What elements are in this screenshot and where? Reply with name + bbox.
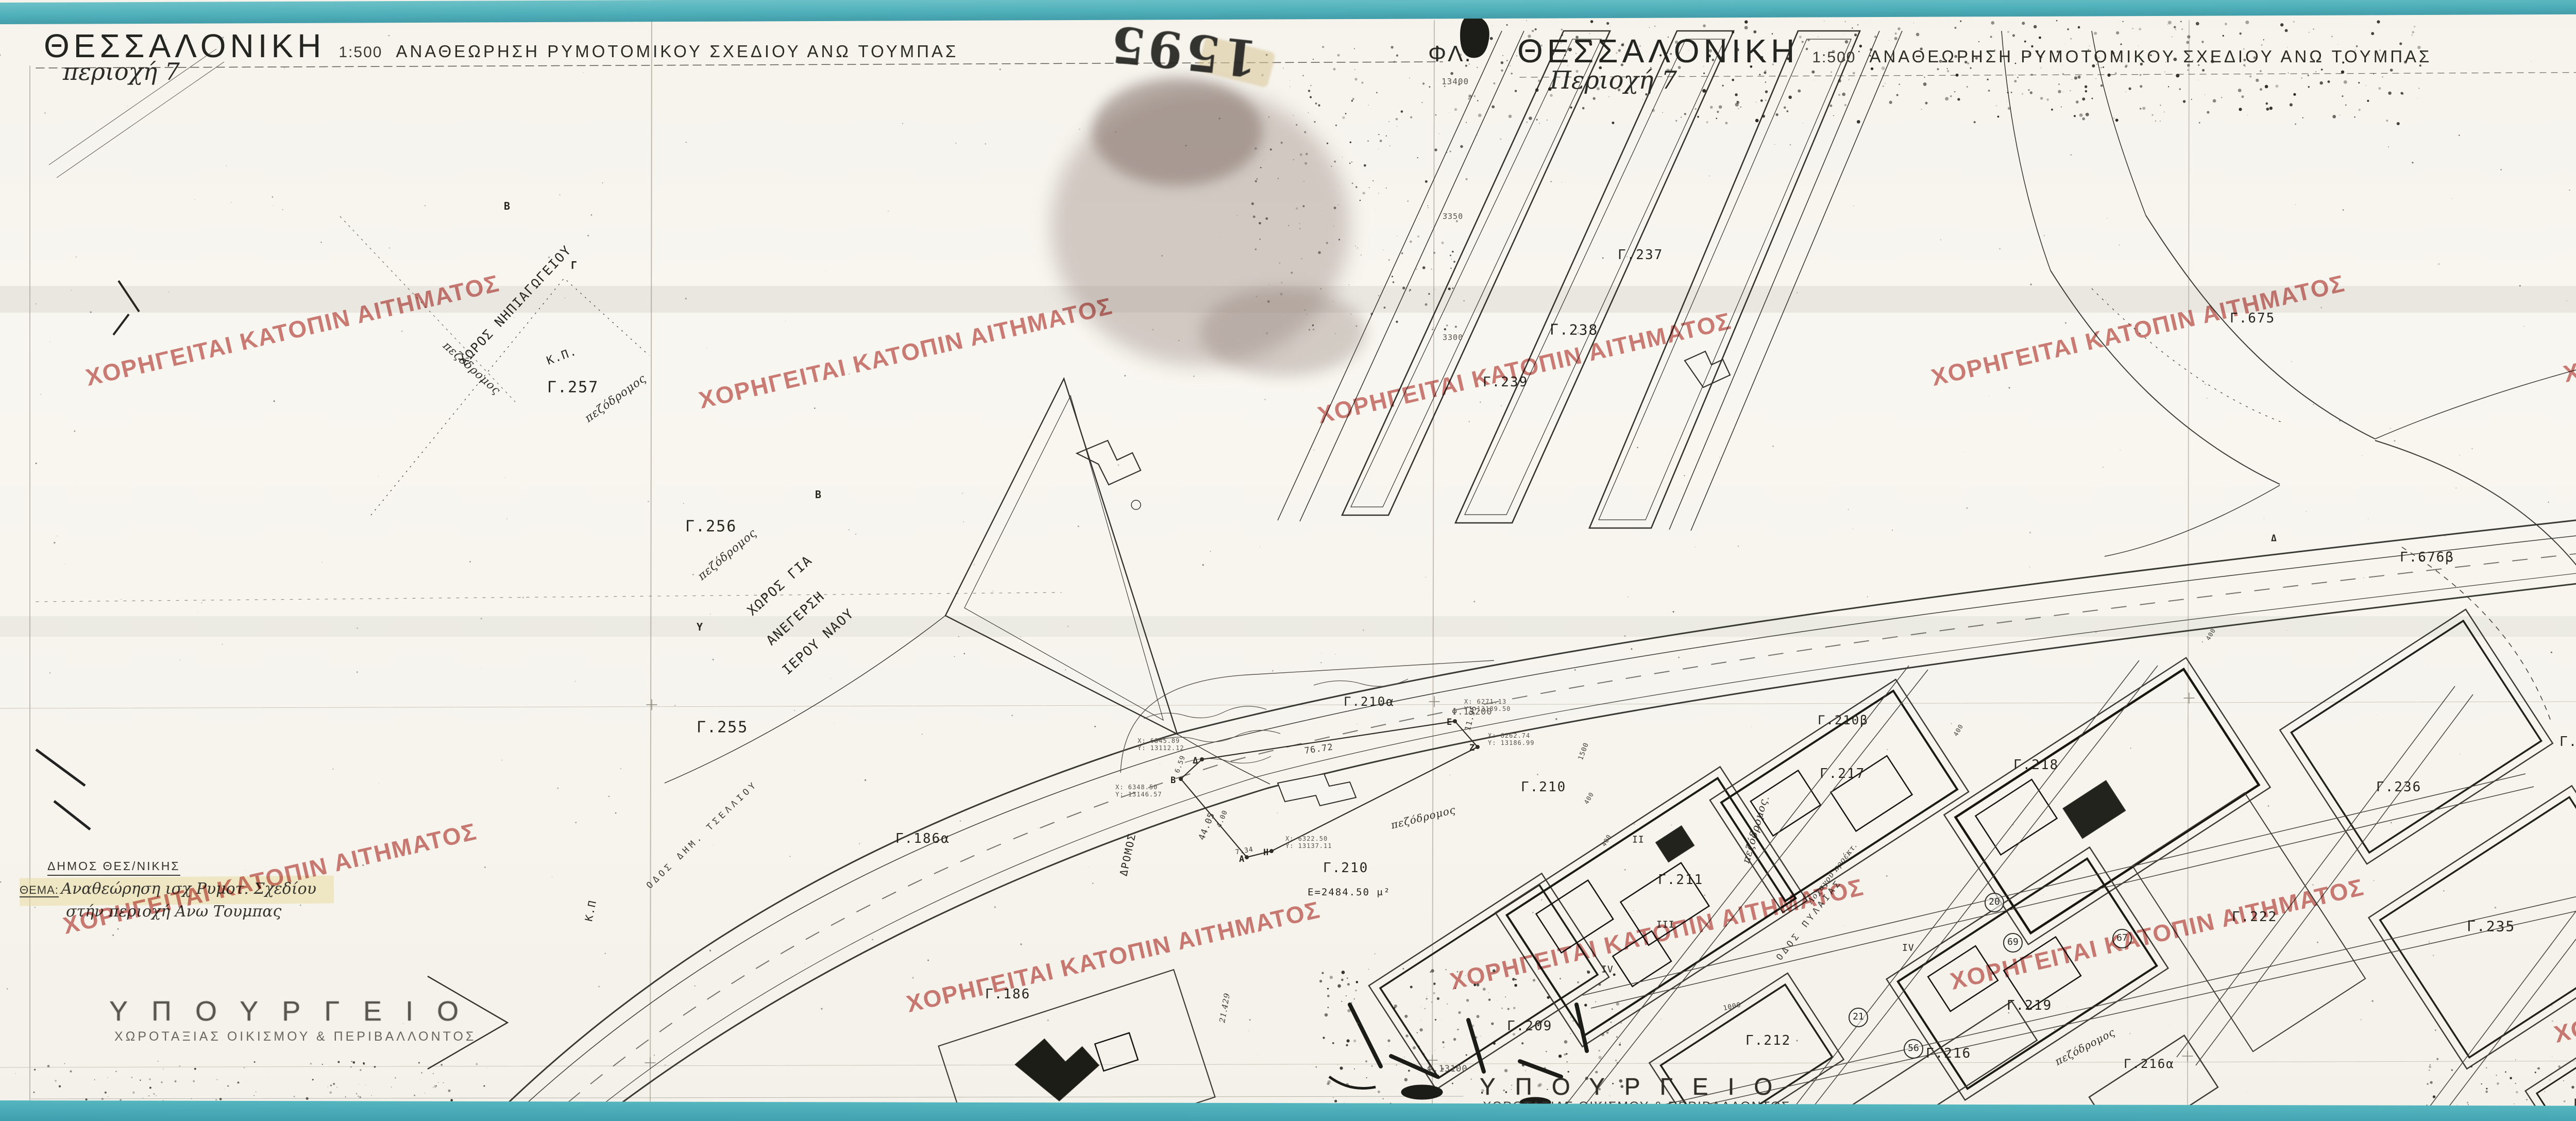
- title-subtitle: ΑΝΑΘΕΩΡΗΣΗ ΡΥΜΟΤΟΜΙΚΟΥ ΣΧΕΔΙΟΥ ΑΝΩ ΤΟΥΜΠ…: [396, 42, 958, 61]
- map-label: Γ.210α: [1344, 694, 1395, 709]
- map-label: Δ: [2271, 533, 2277, 544]
- map-label: Ε=2484.50 μ²: [1308, 887, 1391, 898]
- map-label: Γ.212: [1745, 1033, 1791, 1048]
- block-g210-hatched: [1179, 719, 1480, 859]
- map-label: Χ: 6271.13: [1464, 698, 1506, 705]
- municipality-note: ΔΗΜΟΣ ΘΕΣ/ΝΙΚΗΣ: [47, 859, 180, 873]
- area-note-left: περιοχή 7: [63, 58, 180, 86]
- map-label: Υ: 13186.99: [1488, 739, 1534, 746]
- map-label: Β: [1171, 775, 1176, 786]
- map-label: ΙV: [1601, 964, 1614, 975]
- ministry-left-line1: ΥΠΟΥΡΓΕΙΟ: [109, 995, 482, 1027]
- map-label: Γ.238: [1550, 321, 1598, 338]
- frame-and-gridlines: [0, 21, 2576, 1105]
- map-label: Υ: 13112.12: [1138, 744, 1184, 752]
- ministry-left-line2: ΧΩΡΟΤΑΞΙΑΣ ΟΙΚΙΣΜΟΥ & ΠΕΡΙΒΑΛΛΟΝΤΟΣ: [114, 1029, 476, 1044]
- map-label: Ε: [1447, 717, 1452, 727]
- map-drawing: [0, 0, 2576, 1121]
- map-label: Γ.209: [1507, 1018, 1552, 1034]
- map-label: Γ.216: [1926, 1046, 1971, 1061]
- map-label: Α: [1239, 854, 1244, 864]
- map-label: Β: [815, 488, 821, 501]
- map-label: Υ: 13146.57: [1115, 791, 1162, 798]
- map-label: Χ: 6322.50: [1285, 835, 1328, 842]
- map-label: Γ: [571, 259, 577, 271]
- map-label: Γ.676β: [2400, 550, 2454, 565]
- map-label: 13400: [1442, 77, 1469, 87]
- municipality-title: ΔΗΜΟΣ ΘΕΣ/ΝΙΚΗΣ: [47, 859, 180, 876]
- map-label: Χ: 6262.74: [1488, 732, 1530, 739]
- map-label: Β: [504, 200, 510, 212]
- map-label: 21: [1849, 1008, 1868, 1027]
- map-label: Γ.217: [1820, 766, 1865, 782]
- title-city: ΘΕΣΣΑΛΟΝΙΚΗ: [1517, 32, 1799, 70]
- fold-partial-code: ΦΛ.: [1428, 41, 1472, 67]
- map-label: 20: [1985, 893, 2004, 912]
- map-label: Γ.237: [1618, 247, 1663, 263]
- map-label: Υ: 13137.11: [1285, 842, 1332, 850]
- map-label: Γ.211: [1658, 872, 1703, 888]
- block-g236: [2280, 609, 2552, 864]
- map-label: Γ.236: [2376, 779, 2421, 795]
- map-label: Γ.186α: [895, 831, 950, 846]
- map-label: Γ.255: [697, 719, 748, 737]
- map-label: Χ: 6345.89: [1138, 737, 1180, 744]
- map-label: Χ: 6348.50: [1115, 784, 1158, 791]
- map-label: Γ.216α: [2124, 1057, 2175, 1071]
- scanned-map-sheet: ΘΕΣΣΑΛΟΝΙΚΗ 1:500 ΑΝΑΘΕΩΡΗΣΗ ΡΥΜΟΤΟΜΙΚΟΥ…: [0, 0, 2576, 1121]
- map-label: 56: [1904, 1039, 1923, 1059]
- map-label: Γ.210: [1323, 860, 1368, 876]
- map-label: ΙV: [1902, 943, 1914, 954]
- map-label: ΙΙ: [1632, 835, 1645, 845]
- map-label: Γ.257: [547, 379, 599, 397]
- subject-label: ΘΕΜΑ:: [20, 884, 59, 897]
- map-label: Γ.218: [2013, 757, 2059, 773]
- block-church-site: [371, 278, 1270, 784]
- title-block-left: ΘΕΣΣΑΛΟΝΙΚΗ 1:500 ΑΝΑΘΕΩΡΗΣΗ ΡΥΜΟΤΟΜΙΚΟΥ…: [44, 27, 958, 65]
- block-strips: [1278, 31, 2146, 531]
- map-label: Γ.210: [1521, 779, 1566, 795]
- map-label: 3300: [1443, 333, 1463, 342]
- title-block-center: ΘΕΣΣΑΛΟΝΙΚΗ 1:500 ΑΝΑΘΕΩΡΗΣΗ ΡΥΜΟΤΟΜΙΚΟΥ…: [1517, 32, 2432, 70]
- title-scale: 1:500: [338, 44, 382, 61]
- map-label: Γ.676α: [2560, 734, 2576, 750]
- map-label: 69: [2003, 933, 2023, 953]
- map-label: Γ.210β: [1818, 713, 1869, 727]
- map-label: Γ.256: [685, 518, 737, 536]
- area-note-center: Περιοχή 7: [1550, 66, 1677, 95]
- map-label: Γ.219: [2007, 998, 2052, 1013]
- map-label: Υ: [697, 621, 703, 633]
- map-label: Φ.13100: [1427, 1064, 1468, 1074]
- ministry-center-line1: ΥΠΟΥΡΓΕΙΟ: [1480, 1073, 1792, 1100]
- map-label: 3350: [1443, 212, 1463, 221]
- map-label: Υ: 13189.50: [1464, 705, 1511, 712]
- scan-noise: [0, 20, 2576, 1113]
- title-scale: 1:500: [1812, 49, 1856, 66]
- map-label: Δ: [1193, 756, 1198, 766]
- title-subtitle: ΑΝΑΘΕΩΡΗΣΗ ΡΥΜΟΤΟΜΙΚΟΥ ΣΧΕΔΙΟΥ ΑΝΩ ΤΟΥΜΠ…: [1869, 47, 2432, 66]
- map-label: Ζ: [1469, 743, 1475, 753]
- map-label: Γ.235: [2467, 918, 2515, 935]
- map-label: Η: [1263, 847, 1268, 858]
